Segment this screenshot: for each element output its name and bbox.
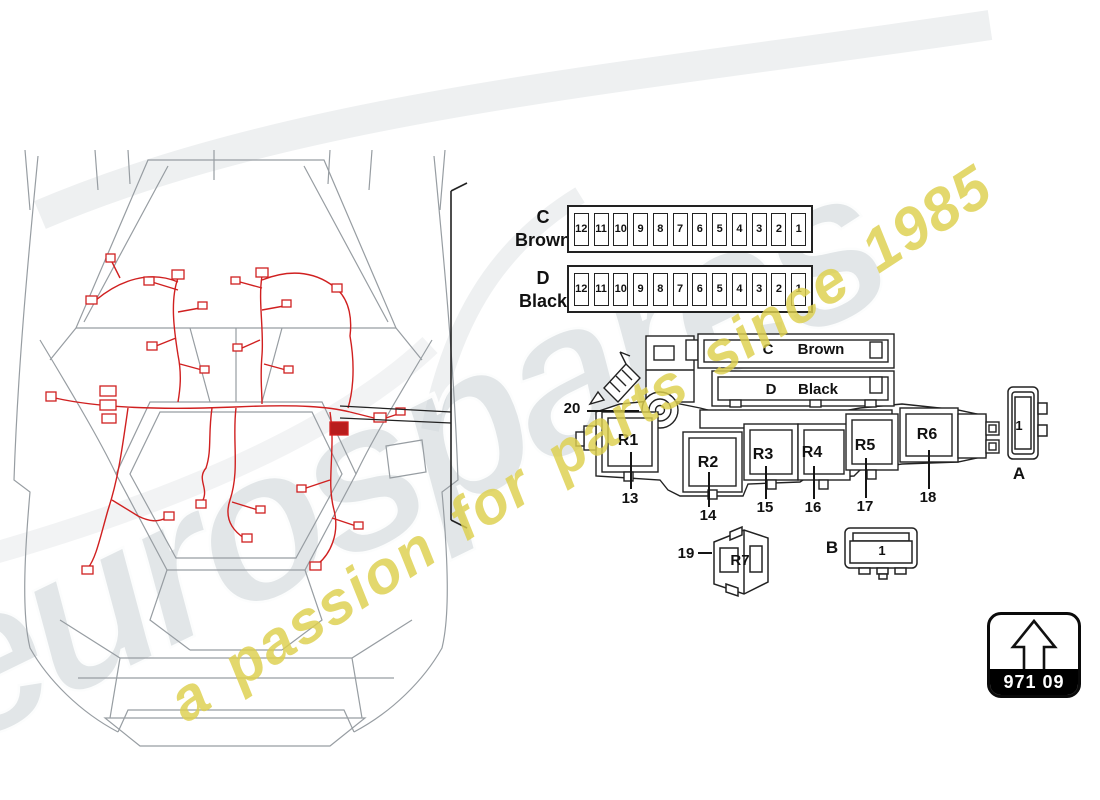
leader-line-15 [765,466,767,499]
fuse-cell[interactable]: 4 [732,213,747,246]
callout-13[interactable]: 13 [622,490,639,507]
car-wireframe-with-harness [0,150,480,770]
part-number-badge[interactable]: 971 09 [987,612,1081,698]
connector-a-drawing [1000,383,1048,467]
fuse-cell[interactable]: 6 [692,273,707,306]
fuse-strip-d: 12 11 10 9 8 7 6 5 4 3 2 1 [567,265,813,313]
callout-16[interactable]: 16 [805,499,822,516]
callout-15[interactable]: 15 [757,499,774,516]
leader-line-20 [587,410,639,412]
connector-a-label: A [1013,464,1025,484]
relay-label-r7: R7 [730,552,749,569]
leader-line-18 [928,450,930,489]
relay-label-r6: R6 [917,426,937,444]
relay-label-r5: R5 [855,437,875,455]
leader-line-16 [813,466,815,499]
fuse-cell[interactable]: 8 [653,213,668,246]
fuse-cell[interactable]: 8 [653,273,668,306]
connector-b-slot: 1 [878,543,885,558]
harness-connectors [46,254,405,574]
bracket-mount-20 [604,364,640,402]
relay-carrier-drawing [560,330,1000,505]
fuse-cell[interactable]: 5 [712,273,727,306]
fuse-cell[interactable]: 10 [613,273,628,306]
fuse-cell[interactable]: 3 [752,213,767,246]
fuse-cell[interactable]: 1 [791,273,806,306]
fuse-cell[interactable]: 4 [732,273,747,306]
relay-label-r1: R1 [618,432,638,450]
fuse-cell[interactable]: 11 [594,213,609,246]
car-body-lines [14,150,458,746]
fuse-cell[interactable]: 11 [594,273,609,306]
fuse-cell[interactable]: 9 [633,213,648,246]
up-arrow-icon [990,617,1078,673]
fuse-cell[interactable]: 6 [692,213,707,246]
connector-b-label: B [826,538,838,558]
relay-label-r4: R4 [802,444,822,462]
connector-a-slot: 1 [1015,418,1022,433]
fuse-cell[interactable]: 2 [771,213,786,246]
part-number-text: 971 09 [990,669,1078,695]
fuse-cell[interactable]: 9 [633,273,648,306]
carrier-row-c-letter: C [763,341,774,358]
fuse-cell[interactable]: 7 [673,213,688,246]
fuse-cell[interactable]: 12 [574,273,589,306]
fuse-strip-c: 12 11 10 9 8 7 6 5 4 3 2 1 [567,205,813,253]
relay-label-r2: R2 [698,454,718,472]
callout-19[interactable]: 19 [678,545,695,562]
carrier-row-d-color: Black [798,381,838,398]
callout-20[interactable]: 20 [564,400,581,417]
leader-line-17 [865,458,867,498]
leader-line-14 [708,472,710,507]
fuse-cell[interactable]: 10 [613,213,628,246]
fuse-cell[interactable]: 12 [574,213,589,246]
carrier-row-d-letter: D [766,381,777,398]
fuse-cell[interactable]: 2 [771,273,786,306]
callout-17[interactable]: 17 [857,498,874,515]
parts-diagram-page: eurospares [0,0,1100,800]
fuse-cell[interactable]: 1 [791,213,806,246]
leader-line-13 [630,452,632,489]
carrier-row-c-color: Brown [798,341,845,358]
relay-label-r3: R3 [753,446,773,464]
fuse-cell[interactable]: 7 [673,273,688,306]
callout-18[interactable]: 18 [920,489,937,506]
fuse-cell[interactable]: 5 [712,213,727,246]
fuse-cell[interactable]: 3 [752,273,767,306]
harness-fusebox-connector [330,422,348,435]
